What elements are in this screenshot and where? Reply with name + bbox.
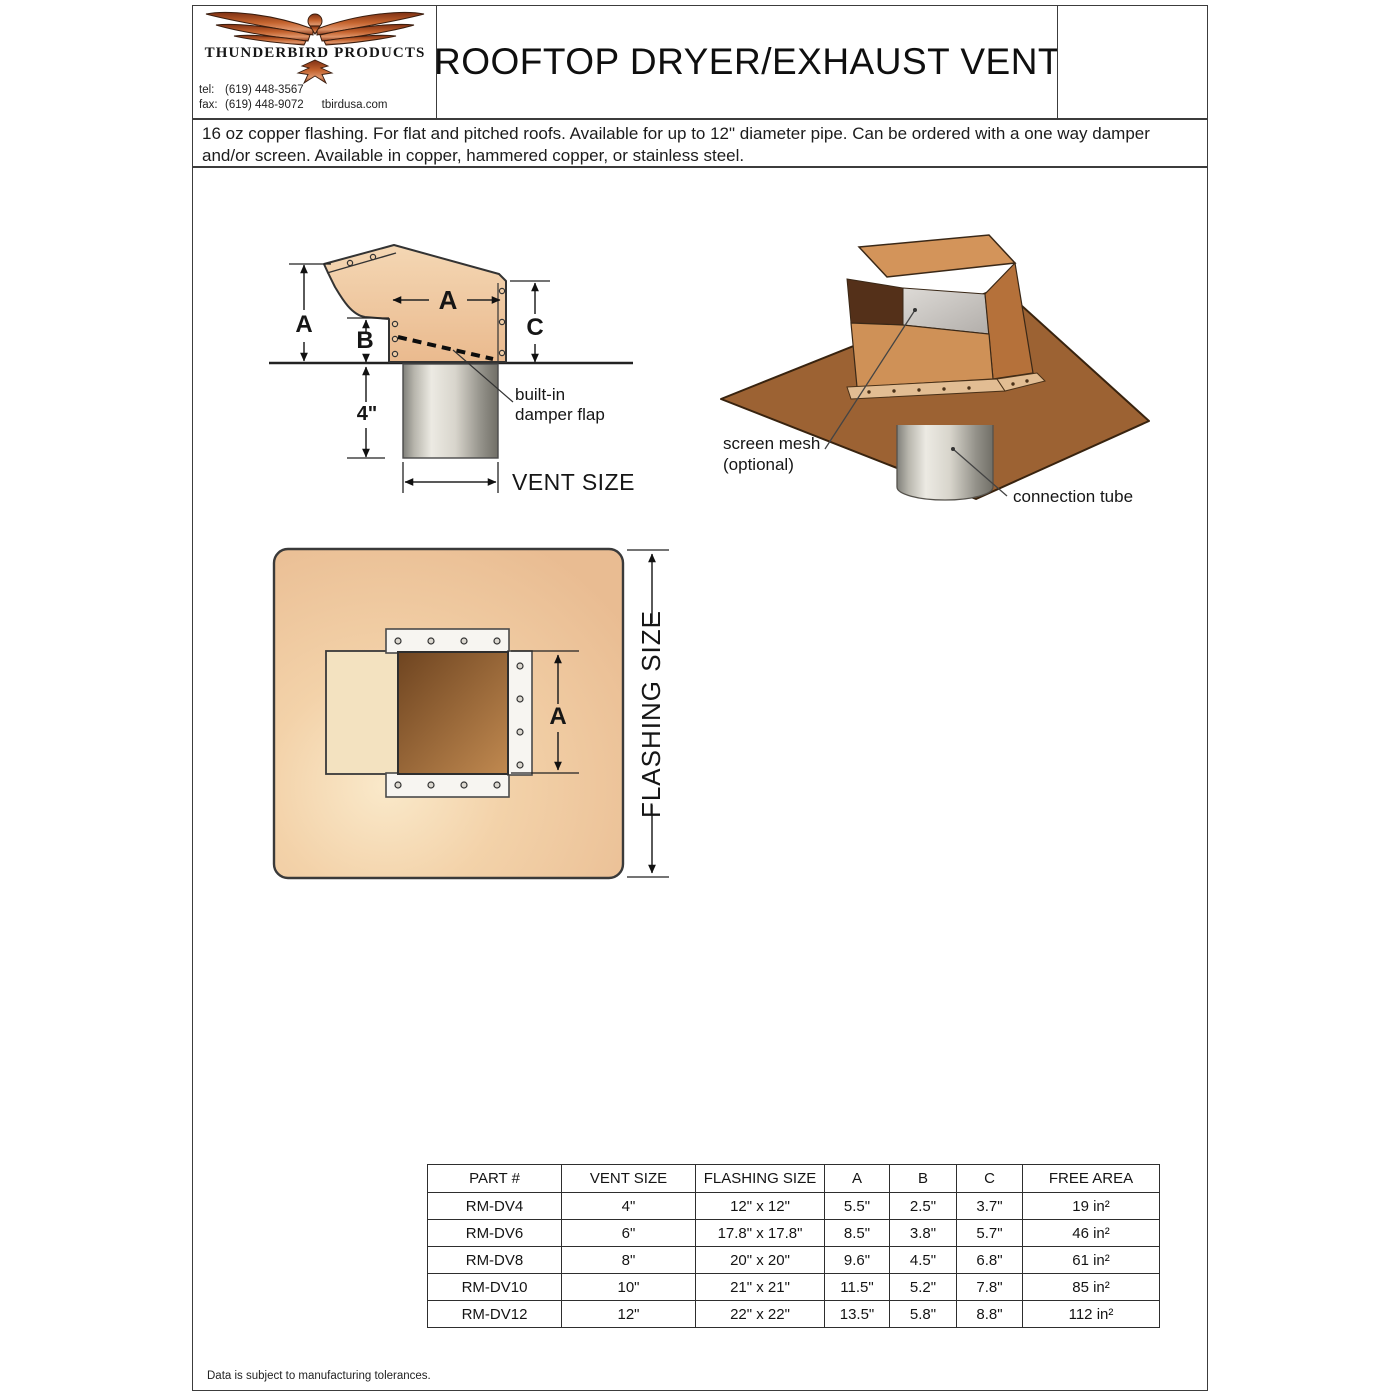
col-flashing-size: FLASHING SIZE (696, 1165, 825, 1193)
bottom-flange-strip (386, 773, 509, 797)
phone-line: tel:(619) 448-3567 (199, 83, 388, 98)
cell-free-area: 112 in² (1023, 1301, 1160, 1328)
cap-top-face (859, 235, 1015, 277)
cell-part: RM-DV10 (428, 1274, 562, 1301)
page-title: ROOFTOP DRYER/EXHAUST VENT (434, 41, 1061, 83)
cell-c: 6.8" (957, 1247, 1023, 1274)
cap-front-face (851, 323, 993, 387)
dim-c-label: C (526, 314, 543, 341)
cell-part: RM-DV4 (428, 1193, 562, 1220)
cell-b: 4.5" (890, 1247, 957, 1274)
table-row: RM-DV66"17.8" x 17.8"8.5"3.8"5.7"46 in² (428, 1220, 1160, 1247)
screen-mesh-label-1: screen mesh (723, 434, 820, 453)
eagle-emblem-icon (298, 60, 332, 83)
cell-c: 5.7" (957, 1220, 1023, 1247)
table-row: RM-DV88"20" x 20"9.6"4.5"6.8"61 in² (428, 1247, 1160, 1274)
product-description: 16 oz copper flashing. For flat and pitc… (193, 120, 1207, 166)
cell-free-area: 61 in² (1023, 1247, 1160, 1274)
cell-free-area: 46 in² (1023, 1220, 1160, 1247)
dim-a-left-label: A (295, 311, 312, 338)
thunderbird-logo-icon: THUNDERBIRD PRODUCTS (200, 8, 430, 86)
cell-flashing: 22" x 22" (696, 1301, 825, 1328)
cell-free-area: 85 in² (1023, 1274, 1160, 1301)
table-row: RM-DV44"12" x 12"5.5"2.5"3.7"19 in² (428, 1193, 1160, 1220)
side-view-diagram: A A B (269, 245, 635, 495)
col-a: A (825, 1165, 890, 1193)
table-row: RM-DV1010"21" x 21"11.5"5.2"7.8"85 in² (428, 1274, 1160, 1301)
col-b: B (890, 1165, 957, 1193)
hood-plan (326, 651, 399, 774)
dim-a-plan-label: A (549, 703, 566, 730)
flashing-size-label: FLASHING SIZE (636, 610, 666, 818)
title-box: ROOFTOP DRYER/EXHAUST VENT (436, 5, 1059, 119)
cell-b: 3.8" (890, 1220, 957, 1247)
cell-part: RM-DV8 (428, 1247, 562, 1274)
table-row: RM-DV1212"22" x 22"13.5"5.8"8.8"112 in² (428, 1301, 1160, 1328)
cell-b: 2.5" (890, 1193, 957, 1220)
fax-line: fax:(619) 448-9072tbirdusa.com (199, 98, 388, 113)
col-vent-size: VENT SIZE (562, 1165, 696, 1193)
cell-a: 8.5" (825, 1220, 890, 1247)
logo-box: THUNDERBIRD PRODUCTS tel:(619) 448-3567 … (192, 5, 438, 119)
cell-vent: 6" (562, 1220, 696, 1247)
main-content-box: A A B (192, 167, 1208, 1391)
col-part: PART # (428, 1165, 562, 1193)
damper-label-1: built-in (515, 385, 565, 404)
cell-c: 8.8" (957, 1301, 1023, 1328)
corner-box (1057, 5, 1208, 119)
dim-vent-size (403, 462, 498, 493)
spec-table: PART # VENT SIZE FLASHING SIZE A B C FRE… (427, 1164, 1160, 1328)
cell-part: RM-DV12 (428, 1301, 562, 1328)
datasheet-page: THUNDERBIRD PRODUCTS tel:(619) 448-3567 … (0, 0, 1400, 1400)
contact-info: tel:(619) 448-3567 fax:(619) 448-9072tbi… (199, 83, 388, 113)
cell-a: 13.5" (825, 1301, 890, 1328)
vent-pipe (403, 364, 498, 458)
company-name: THUNDERBIRD PRODUCTS (205, 45, 426, 61)
cell-flashing: 12" x 12" (696, 1193, 825, 1220)
table-header-row: PART # VENT SIZE FLASHING SIZE A B C FRE… (428, 1165, 1160, 1193)
screen-mesh-label-2: (optional) (723, 455, 794, 474)
tel-label: tel: (199, 83, 225, 98)
eagle-wings-icon (206, 12, 424, 45)
col-c: C (957, 1165, 1023, 1193)
iso-view-diagram: screen mesh (optional) connection tube (721, 235, 1149, 506)
connection-tube (897, 425, 993, 500)
dim-b-label: B (356, 327, 373, 354)
cell-b: 5.2" (890, 1274, 957, 1301)
top-flange-strip (386, 629, 509, 653)
description-bar: 16 oz copper flashing. For flat and pitc… (192, 119, 1208, 167)
connection-tube-label: connection tube (1013, 487, 1133, 506)
top-view-diagram: A FLASHING SIZE (274, 549, 669, 878)
fax-number: (619) 448-9072 (225, 99, 304, 111)
cap-opening-shadow (847, 279, 903, 325)
footer-note: Data is subject to manufacturing toleran… (207, 1370, 431, 1382)
cell-c: 3.7" (957, 1193, 1023, 1220)
cell-flashing: 21" x 21" (696, 1274, 825, 1301)
cell-b: 5.8" (890, 1301, 957, 1328)
cell-flashing: 17.8" x 17.8" (696, 1220, 825, 1247)
cell-vent: 10" (562, 1274, 696, 1301)
cell-c: 7.8" (957, 1274, 1023, 1301)
damper-label-2: damper flap (515, 405, 605, 424)
cell-vent: 12" (562, 1301, 696, 1328)
cell-a: 9.6" (825, 1247, 890, 1274)
col-free-area: FREE AREA (1023, 1165, 1160, 1193)
dim-a-horizontal-label: A (439, 285, 458, 315)
cell-flashing: 20" x 20" (696, 1247, 825, 1274)
cell-a: 5.5" (825, 1193, 890, 1220)
cell-free-area: 19 in² (1023, 1193, 1160, 1220)
technical-diagrams: A A B (193, 168, 1209, 1028)
tel-number: (619) 448-3567 (225, 84, 304, 96)
website-link[interactable]: tbirdusa.com (322, 99, 388, 111)
fax-label: fax: (199, 98, 225, 113)
cell-a: 11.5" (825, 1274, 890, 1301)
cell-part: RM-DV6 (428, 1220, 562, 1247)
pipe-length-label: 4" (357, 403, 378, 425)
cell-vent: 4" (562, 1193, 696, 1220)
vent-size-label: VENT SIZE (512, 469, 635, 495)
vent-opening-plan (398, 652, 508, 774)
cell-vent: 8" (562, 1247, 696, 1274)
